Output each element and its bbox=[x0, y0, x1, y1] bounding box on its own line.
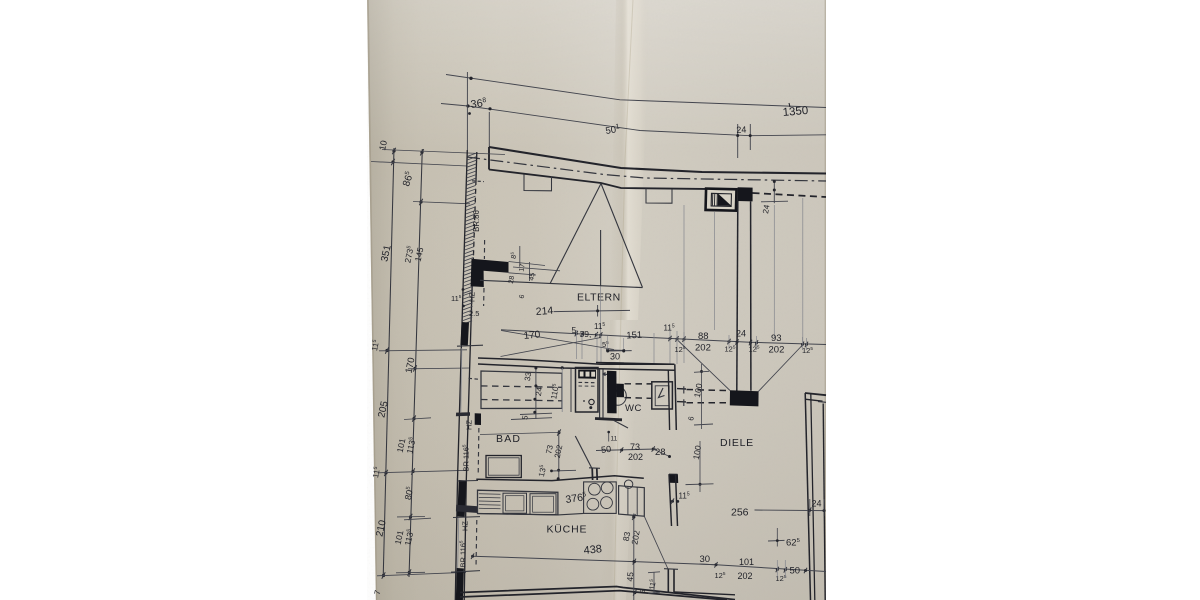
svg-text:45: 45 bbox=[625, 571, 636, 582]
svg-text:151: 151 bbox=[626, 330, 642, 342]
svg-text:101: 101 bbox=[739, 557, 754, 567]
svg-text:HZ: HZ bbox=[465, 420, 474, 430]
svg-text:202: 202 bbox=[769, 345, 785, 356]
svg-text:202: 202 bbox=[695, 343, 711, 354]
svg-text:30: 30 bbox=[610, 352, 620, 362]
svg-text:HZ: HZ bbox=[461, 521, 470, 531]
svg-text:50: 50 bbox=[790, 566, 801, 577]
svg-text:256: 256 bbox=[731, 507, 749, 519]
svg-text:BR 1165: BR 1165 bbox=[462, 444, 471, 471]
svg-text:BAD: BAD bbox=[496, 433, 521, 445]
svg-text:17: 17 bbox=[518, 263, 526, 272]
svg-text:KÜCHE: KÜCHE bbox=[547, 524, 588, 536]
svg-text:BR.86: BR.86 bbox=[472, 210, 481, 232]
svg-text:45: 45 bbox=[528, 272, 536, 281]
svg-text:2.5: 2.5 bbox=[469, 309, 479, 318]
svg-text:10: 10 bbox=[377, 139, 389, 151]
svg-text:28: 28 bbox=[508, 275, 516, 284]
svg-text:5: 5 bbox=[572, 325, 577, 335]
svg-text:88: 88 bbox=[698, 331, 709, 342]
svg-text:WC: WC bbox=[625, 403, 642, 414]
svg-text:202: 202 bbox=[738, 571, 753, 581]
svg-text:170: 170 bbox=[523, 329, 541, 342]
svg-text:11: 11 bbox=[611, 436, 618, 443]
svg-text:30: 30 bbox=[700, 554, 711, 565]
svg-text:93: 93 bbox=[771, 333, 782, 344]
svg-text:50: 50 bbox=[601, 444, 612, 455]
svg-text:73: 73 bbox=[630, 442, 640, 452]
svg-text:202: 202 bbox=[628, 452, 643, 462]
svg-text:24: 24 bbox=[812, 499, 822, 509]
svg-text:1350: 1350 bbox=[782, 105, 809, 119]
svg-text:214: 214 bbox=[535, 305, 553, 318]
svg-text:24: 24 bbox=[736, 124, 747, 135]
svg-text:BR 1165: BR 1165 bbox=[459, 540, 468, 567]
svg-text:28: 28 bbox=[655, 447, 666, 458]
svg-text:HZ: HZ bbox=[468, 292, 477, 302]
svg-text:24: 24 bbox=[736, 329, 746, 339]
svg-text:DIELE: DIELE bbox=[720, 437, 754, 449]
svg-text:438: 438 bbox=[583, 543, 603, 557]
svg-text:39,: 39, bbox=[580, 329, 592, 339]
svg-text:ELTERN: ELTERN bbox=[577, 292, 621, 304]
